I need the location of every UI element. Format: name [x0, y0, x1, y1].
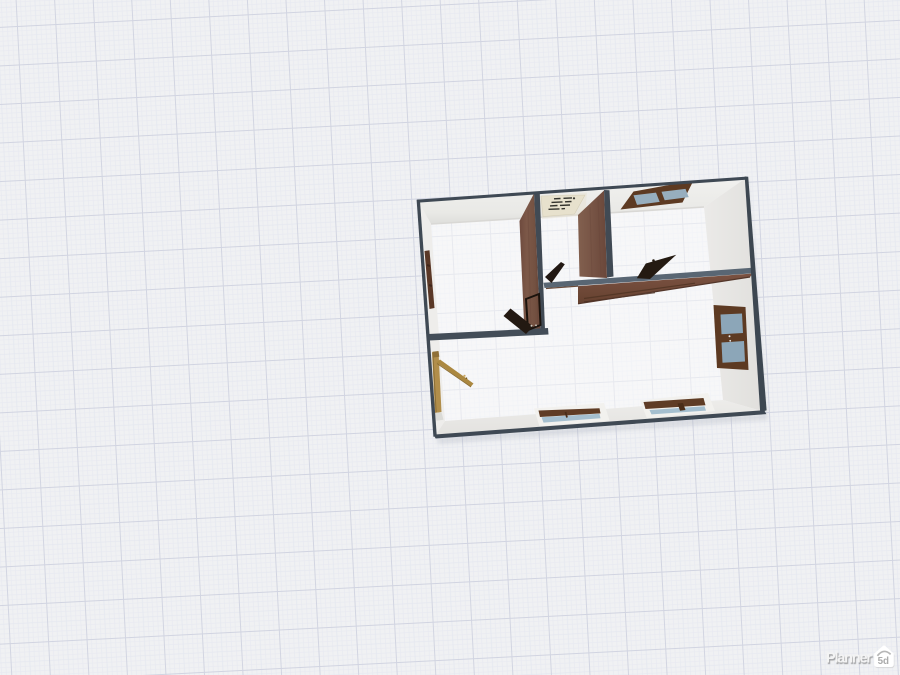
svg-text:Planner: Planner [826, 651, 872, 667]
svg-text:5d: 5d [878, 656, 889, 667]
